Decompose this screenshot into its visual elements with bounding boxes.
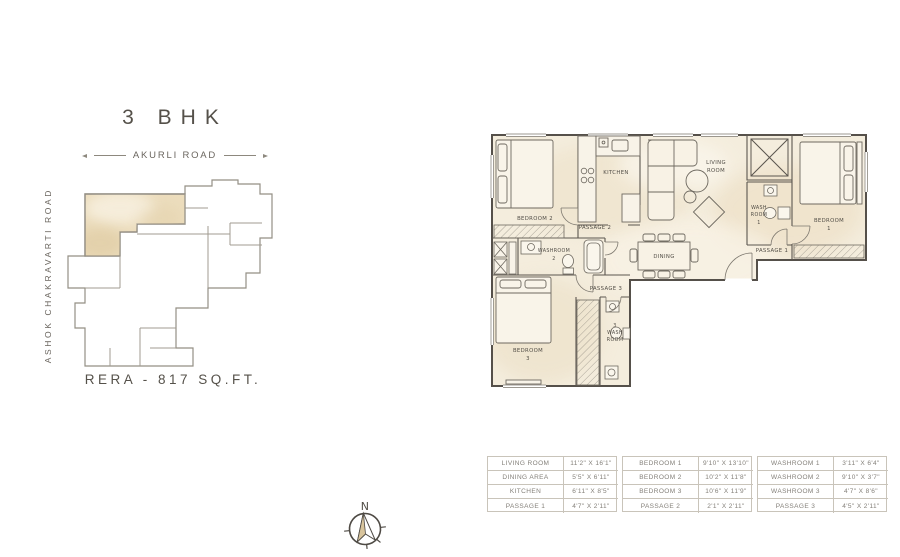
road-top-text: AKURLI ROAD [133, 150, 217, 161]
dimension-table-2: BEDROOM 1 9'10" X 13'10" BEDROOM 2 10'2"… [622, 456, 752, 512]
road-line [94, 155, 126, 156]
bed-bedroom1 [800, 142, 862, 204]
room-name: PASSAGE 3 [758, 499, 834, 513]
room-dim: 6'11" X 8'5" [564, 485, 618, 499]
room-dim: 4'7" X 2'11" [564, 499, 618, 513]
room-name: BEDROOM 3 [623, 485, 699, 499]
label-bedroom2: BEDROOM 2 [517, 216, 553, 222]
room-name: KITCHEN [488, 485, 564, 499]
arrow-right-icon [263, 154, 268, 158]
label-bedroom3-n: 3 [526, 356, 530, 362]
label-passage2: PASSAGE 2 [579, 225, 612, 231]
room-name: DINING AREA [488, 471, 564, 485]
road-line [224, 155, 256, 156]
key-plan [50, 178, 285, 376]
label-dining: DINING [653, 254, 674, 260]
room-dim: 4'5" X 2'11" [834, 499, 888, 513]
floor-plan-page: 3 BHK AKURLI ROAD ASHOK CHAKRAVARTI ROAD… [0, 0, 900, 557]
room-dim: 5'5" X 6'11" [564, 471, 618, 485]
road-label-top: AKURLI ROAD [82, 150, 268, 161]
room-dim: 10'6" X 11'9" [699, 485, 753, 499]
north-label: N [361, 500, 370, 513]
label-wash3-n: 3 [613, 323, 616, 329]
label-washroom2-a: WASHROOM [538, 248, 570, 254]
room-dim: 10'2" X 11'8" [699, 471, 753, 485]
room-name: LIVING ROOM [488, 457, 564, 471]
arrow-left-icon [82, 154, 87, 158]
label-washroom2-n: 2 [552, 256, 555, 262]
page-title: 3 BHK [70, 106, 280, 130]
room-name: BEDROOM 2 [623, 471, 699, 485]
room-name: PASSAGE 1 [488, 499, 564, 513]
room-dim: 9'10" X 13'10" [699, 457, 753, 471]
label-wash1-n: 1 [757, 220, 760, 226]
room-dim: 4'7" X 8'6" [834, 485, 888, 499]
room-name: PASSAGE 2 [623, 499, 699, 513]
room-dim: 3'11" X 6'4" [834, 457, 888, 471]
label-wash1-b: ROOM [751, 212, 767, 218]
label-wash3-a: WASH [607, 330, 623, 336]
label-bedroom1-n: 1 [827, 226, 831, 232]
dimension-table-1: LIVING ROOM 11'2" X 16'1" DINING AREA 5'… [487, 456, 617, 512]
label-passage3: PASSAGE 3 [590, 286, 623, 292]
label-living-1: LIVING [706, 160, 726, 166]
room-name: WASHROOM 1 [758, 457, 834, 471]
label-kitchen: KITCHEN [603, 170, 628, 176]
room-name: BEDROOM 1 [623, 457, 699, 471]
room-dim: 2'1" X 2'11" [699, 499, 753, 513]
label-wash3-b: ROOM [607, 337, 623, 343]
room-dim: 9'10" X 3'7" [834, 471, 888, 485]
rera-area-text: RERA - 817 SQ.FT. [55, 372, 291, 387]
label-passage1: PASSAGE 1 [756, 248, 789, 254]
label-living-2: ROOM [707, 168, 725, 174]
label-wash1-a: WASH [751, 205, 767, 211]
room-dim: 11'2" X 16'1" [564, 457, 618, 471]
compass-rose: N [336, 496, 394, 554]
label-bedroom1-a: BEDROOM [814, 218, 844, 224]
dimension-table-3: WASHROOM 1 3'11" X 6'4" WASHROOM 2 9'10"… [757, 456, 887, 512]
bed-bedroom2 [496, 140, 553, 208]
label-bedroom3-a: BEDROOM [513, 348, 543, 354]
floor-plan: BEDROOM 2 KITCHEN LIVING ROOM WASH ROOM … [488, 130, 872, 392]
room-name: WASHROOM 3 [758, 485, 834, 499]
room-name: WASHROOM 2 [758, 471, 834, 485]
